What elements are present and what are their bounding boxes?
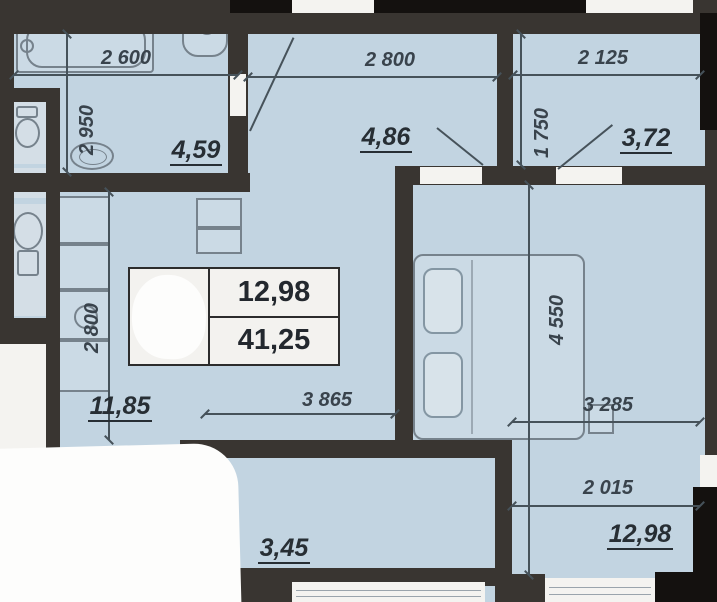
whiteout-blob [130, 273, 208, 361]
dim-living-height: 2 800 [80, 283, 104, 373]
area-label-balcony: 3,45 [244, 534, 324, 563]
dimension-line [520, 34, 522, 165]
dim-bedroom-lower-width: 2 015 [558, 476, 658, 500]
wardrobe-door-opening [556, 167, 622, 184]
wall-bathroom-bottom [0, 173, 250, 192]
toilet-icon [13, 212, 43, 250]
wall-bottom-corner [655, 572, 717, 602]
wall-balcony-top [180, 440, 512, 458]
window [545, 578, 655, 602]
floor-plan: 2 600 2 800 2 125 2 950 1 750 4 550 2 80… [0, 0, 717, 602]
wall-balcony-bedroom [495, 440, 512, 602]
wall [46, 88, 60, 458]
dimension-line [512, 505, 700, 507]
opening [700, 455, 717, 487]
toilet-icon [15, 118, 40, 148]
dimension-line [512, 421, 700, 423]
whiteout-blob [0, 443, 243, 602]
bedroom-door-opening [420, 167, 482, 184]
wall [374, 0, 586, 13]
stamp-room-area: 12,98 [210, 269, 338, 318]
dim-bath-width: 2 600 [76, 46, 176, 70]
wall-living-bedroom [395, 166, 413, 458]
dimension-line [248, 76, 497, 78]
dim-bedroom-height: 4 550 [545, 275, 569, 365]
dim-hall-width: 2 800 [340, 48, 440, 72]
area-stamp: 12,98 41,25 [128, 267, 340, 366]
area-label-bathroom: 4,59 [156, 136, 236, 165]
wall-bottom [512, 574, 545, 602]
kitchen-cabinet [196, 228, 242, 254]
dim-wardrobe-width: 2 125 [553, 46, 653, 70]
outside-strip [0, 344, 46, 454]
door-swing [436, 127, 483, 166]
door-swing [249, 37, 294, 131]
dim-bath-height: 2 950 [75, 85, 99, 175]
wall-hall-wardrobe [497, 13, 513, 168]
opening [586, 0, 693, 13]
area-label-living-kitchen: 11,85 [74, 392, 166, 421]
wall [0, 0, 230, 13]
dim-wardrobe-height: 1 750 [530, 88, 554, 178]
stamp-total-area: 41,25 [210, 318, 338, 365]
pillow-icon [423, 268, 463, 334]
stamp-logo-cell [130, 269, 210, 364]
dimension-line [66, 34, 68, 172]
wall [693, 0, 717, 13]
dimension-line [528, 185, 530, 575]
dim-bedroom-width: 3 285 [558, 393, 658, 417]
area-label-bedroom: 12,98 [594, 520, 686, 549]
dimension-line [14, 74, 238, 76]
kitchen-cabinet [196, 198, 242, 228]
wall-right [705, 130, 717, 455]
faucet-icon [20, 39, 34, 53]
entrance-opening [292, 0, 374, 13]
toilet-icon [17, 250, 39, 276]
dimension-line [205, 413, 395, 415]
wall-top [0, 13, 717, 34]
pillow-icon [423, 352, 463, 418]
dimension-line [513, 74, 700, 76]
window [292, 582, 485, 602]
area-label-wardrobe: 3,72 [606, 124, 686, 153]
area-label-hallway: 4,86 [346, 123, 426, 152]
dim-living-width: 3 865 [277, 388, 377, 412]
wall [230, 0, 292, 13]
door-swing [557, 124, 613, 170]
toilet-icon [16, 106, 38, 118]
